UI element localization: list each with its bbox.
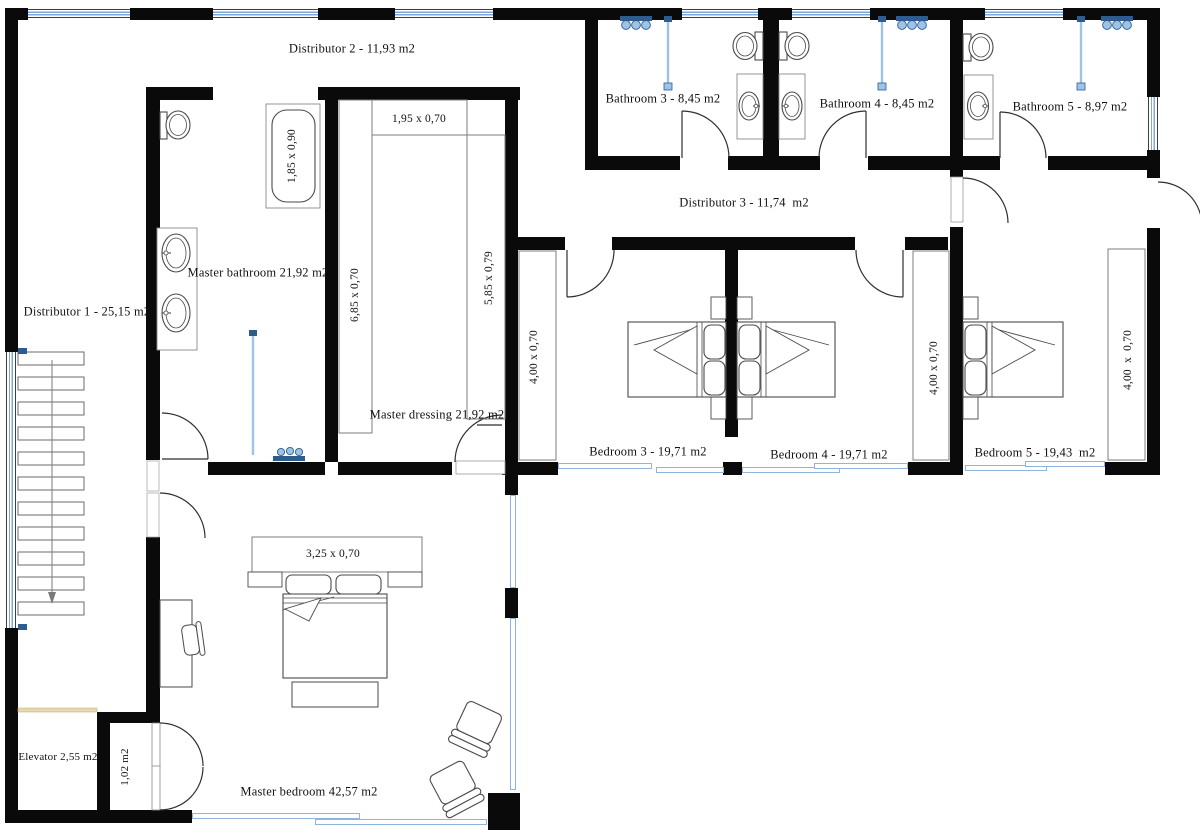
label-bedroom4: Bedroom 4 - 19,71 m2: [770, 448, 888, 463]
bathroom5-fixtures: [963, 16, 1133, 139]
double-sink-icon: [157, 228, 197, 350]
dressing-left-closet: [339, 100, 372, 433]
label-bathroom3: Bathroom 3 - 8,45 m2: [606, 92, 721, 107]
fixtures-layer: [0, 0, 1200, 830]
dim-bedroom3-closet: 4,00 x 0,70: [528, 330, 540, 384]
master-bed-icon: [248, 572, 422, 707]
elevator-door-icon: [18, 708, 97, 712]
dim-bedroom5-closet: 4,00 x 0,70: [1122, 330, 1134, 390]
bathroom3-fixtures: [620, 16, 763, 139]
dim-master-bed-closet: 3,25 x 0,70: [306, 548, 360, 560]
dim-dressing-left-closet: 6,85 x 0,70: [349, 268, 361, 322]
shower-icon: [249, 330, 305, 461]
armchairs: [427, 699, 505, 819]
toilet-icon: [779, 32, 809, 60]
label-master-dressing: Master dressing 21,92 m2: [370, 408, 505, 423]
bedroom4-bed-icon: [737, 297, 835, 419]
dim-dressing-top-closet: 1,95 x 0,70: [392, 113, 446, 125]
label-master-bedroom: Master bedroom 42,57 m2: [240, 785, 377, 800]
dim-bathtub: 1,85 x 0,90: [286, 129, 298, 183]
label-bathroom4: Bathroom 4 - 8,45 m2: [820, 97, 935, 112]
bathroom4-fixtures: [779, 16, 928, 139]
bedroom5-bed-icon: [963, 297, 1063, 419]
shower-icon: [620, 16, 672, 90]
label-hall-small: 1,02 m2: [119, 748, 131, 785]
desk-icon: [160, 600, 205, 687]
shower-icon: [1077, 16, 1133, 90]
sink-icon: [779, 74, 805, 139]
label-bedroom3: Bedroom 3 - 19,71 m2: [589, 445, 707, 460]
armchair-icon: [427, 759, 486, 819]
label-elevator: Elevator 2,55 m2: [18, 751, 97, 763]
bench-icon: [292, 682, 378, 707]
sink-icon: [964, 75, 993, 139]
label-master-bathroom: Master bathroom 21,92 m2: [188, 266, 329, 281]
bedroom3-bed-icon: [628, 297, 726, 419]
armchair-icon: [447, 699, 505, 758]
dim-dressing-right-closet: 5,85 x 0,79: [483, 251, 495, 305]
floor-plan: Distributor 1 - 25,15 m2 Distributor 2 -…: [0, 0, 1200, 830]
label-bathroom5: Bathroom 5 - 8,97 m2: [1013, 100, 1128, 115]
sink-icon: [737, 74, 763, 139]
label-distributor2: Distributor 2 - 11,93 m2: [289, 42, 415, 57]
toilet-icon: [733, 32, 763, 60]
dim-bedroom4-closet: 4,00 x 0,70: [928, 341, 940, 395]
label-distributor1: Distributor 1 - 25,15 m2: [24, 305, 151, 320]
toilet-icon: [963, 34, 993, 62]
label-distributor3: Distributor 3 - 11,74 m2: [679, 196, 809, 211]
label-bedroom5: Bedroom 5 - 19,43 m2: [975, 446, 1096, 461]
shower-icon: [878, 16, 928, 90]
toilet-icon: [160, 111, 190, 139]
stairs-icon: [18, 348, 84, 630]
desk-chair-icon: [181, 621, 206, 657]
